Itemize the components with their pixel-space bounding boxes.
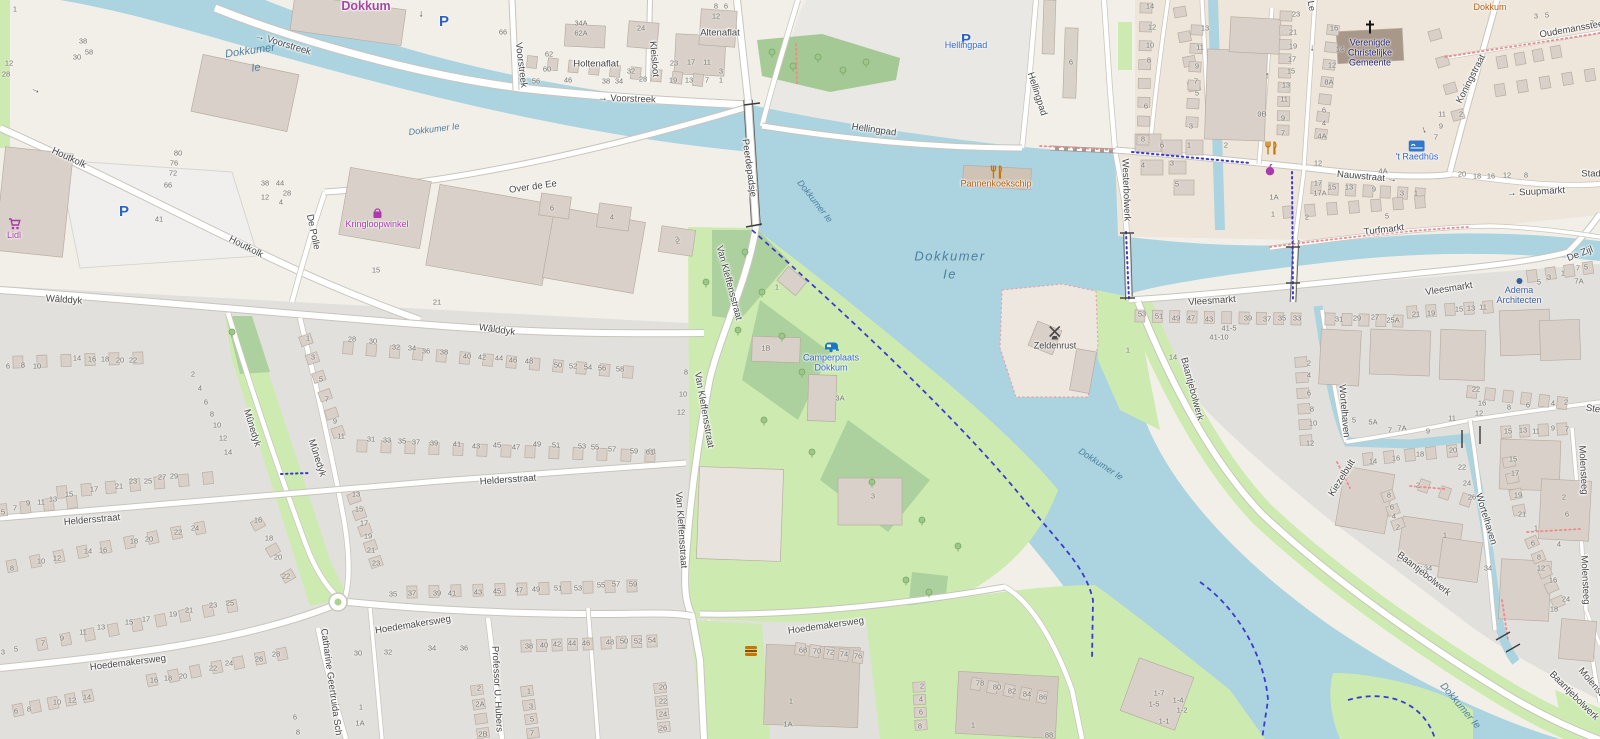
poi-label: Gemeente bbox=[1348, 58, 1392, 68]
poi-label: Christelijke bbox=[1348, 48, 1392, 58]
poi-label: Hellingpad bbox=[945, 40, 988, 50]
cart-icon bbox=[7, 218, 21, 230]
poi-label: Dokkum bbox=[803, 363, 859, 373]
cross-icon bbox=[1348, 21, 1392, 34]
lidl-poi[interactable]: Lidl bbox=[7, 218, 21, 240]
poi-label: Dokkum bbox=[1473, 2, 1506, 12]
caravan-icon bbox=[803, 342, 859, 353]
poi-label: Zeldenrust bbox=[1034, 341, 1077, 351]
poi-label: Camperplaats bbox=[803, 353, 859, 363]
fork-icon bbox=[960, 166, 1031, 179]
poi-label: Pannenkoekschip bbox=[960, 179, 1031, 189]
burger-icon bbox=[744, 646, 758, 656]
fork-icon bbox=[1264, 142, 1278, 155]
roundabout bbox=[329, 593, 347, 611]
frysl-n-locatie-dokkum-poi[interactable]: FryslânlocatieDokkum bbox=[1473, 0, 1506, 12]
apple-icon bbox=[1265, 164, 1276, 176]
bag-icon bbox=[345, 207, 408, 219]
adema-architecten-poi[interactable]: AdemaArchitecten bbox=[1496, 277, 1541, 305]
dot-icon bbox=[1496, 277, 1541, 285]
zeldenrust-poi[interactable]: Zeldenrust bbox=[1034, 326, 1077, 351]
poi-label: Kringloopwinkel bbox=[345, 219, 408, 229]
apple-poi[interactable] bbox=[1265, 164, 1276, 176]
windmill-icon bbox=[1034, 326, 1077, 341]
poi-label: Adema bbox=[1496, 285, 1541, 295]
poi-label: Architecten bbox=[1496, 295, 1541, 305]
burger-poi[interactable] bbox=[744, 646, 758, 656]
-t-raedh-s-poi[interactable]: 't Raedhûs bbox=[1396, 141, 1439, 162]
bed-icon bbox=[1396, 141, 1439, 152]
poi-label: Verenigde bbox=[1348, 38, 1392, 48]
fork-poi[interactable] bbox=[1264, 142, 1278, 155]
map-geometry bbox=[0, 0, 1600, 739]
hellingpad-poi[interactable]: PHellingpad bbox=[945, 40, 988, 50]
pannenkoekschip-poi[interactable]: Pannenkoekschip bbox=[960, 166, 1031, 189]
verenigde-christelijke-gemeente-poi[interactable]: VerenigdeChristelijkeGemeente bbox=[1348, 21, 1392, 68]
map-canvas[interactable]: → VoorstreekVoorstreek→ VoorstreekHolten… bbox=[0, 0, 1600, 739]
poi-label: 't Raedhûs bbox=[1396, 152, 1439, 162]
kringloopwinkel-poi[interactable]: Kringloopwinkel bbox=[345, 207, 408, 229]
camperplaats-dokkum-poi[interactable]: CamperplaatsDokkum bbox=[803, 342, 859, 373]
poi-label: Lidl bbox=[7, 230, 21, 240]
